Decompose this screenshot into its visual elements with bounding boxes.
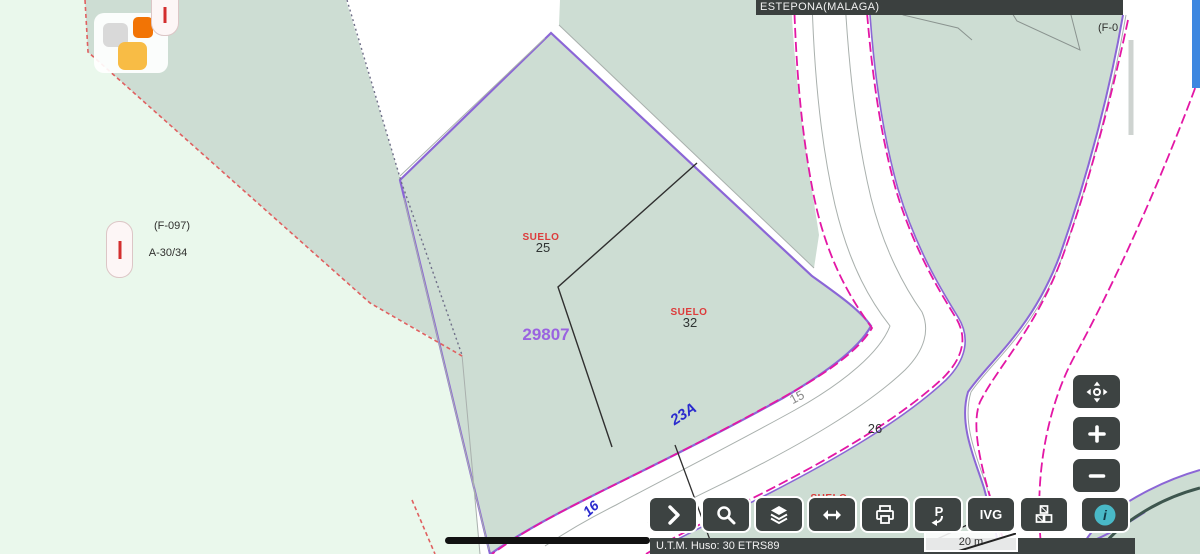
road-marker-stripe (118, 241, 121, 259)
chevron-right-icon (661, 503, 685, 527)
cadastral-map-viewer: SUELO 25 SUELO 32 29807 26 (F-097) A-30/… (0, 0, 1200, 554)
municipality-bar: ESTEPONA(MALAGA) (756, 0, 1123, 15)
scrollbar-thumb[interactable] (1192, 0, 1200, 88)
zoom-out-button[interactable] (1071, 457, 1122, 494)
parcel-number-26: 26 (868, 421, 882, 436)
measure-button[interactable] (807, 496, 857, 533)
road-marker (151, 0, 179, 36)
municipality-label: ESTEPONA(MALAGA) (760, 1, 879, 13)
map-canvas[interactable]: SUELO 25 SUELO 32 29807 26 (F-097) A-30/… (0, 0, 1200, 554)
road-code-a3034: A-30/34 (149, 247, 188, 259)
toggle-panel-button[interactable] (648, 496, 698, 533)
parcel-ref-29807: 29807 (522, 325, 569, 344)
scale-indicator: 20 m (924, 531, 1018, 552)
parcel-number-25: 25 (536, 240, 550, 255)
pan-button[interactable] (1071, 373, 1122, 410)
zoom-in-button[interactable] (1071, 415, 1122, 452)
printer-icon (873, 503, 897, 527)
zoom-controls (1071, 373, 1122, 494)
cubes-3d-icon (1032, 503, 1056, 527)
minus-icon (1085, 464, 1109, 488)
layers-icon (767, 503, 791, 527)
info-button[interactable]: i (1080, 496, 1130, 533)
logo-square-orange-icon (133, 17, 153, 38)
point-info-icon: P (926, 503, 950, 527)
scale-line (445, 537, 650, 544)
print-button[interactable] (860, 496, 910, 533)
plus-icon (1085, 422, 1109, 446)
parcel-number-32: 32 (683, 315, 697, 330)
road-marker (106, 221, 133, 278)
road-marker-stripe (164, 7, 167, 23)
search-button[interactable] (701, 496, 751, 533)
select-point-button[interactable]: P (913, 496, 963, 533)
search-icon (714, 503, 738, 527)
layers-button[interactable] (754, 496, 804, 533)
ivg-label: IVG (980, 507, 1002, 522)
ivg-button[interactable]: IVG (966, 496, 1016, 533)
logo-square-amber-icon (118, 42, 147, 70)
road-ref-f0-cut: (F-0 (1098, 22, 1118, 34)
status-bar: U.T.M. Huso: 30 ETRS89 (650, 538, 1135, 554)
map-toolbar: P IVG i (648, 496, 1130, 533)
arrow-left-right-icon (820, 503, 844, 527)
cubes-3d-button[interactable] (1019, 496, 1069, 533)
road-ref-f097: (F-097) (154, 220, 190, 232)
info-icon: i (1093, 503, 1117, 527)
pan-icon (1085, 380, 1109, 404)
utm-label: U.T.M. Huso: 30 ETRS89 (656, 540, 780, 552)
